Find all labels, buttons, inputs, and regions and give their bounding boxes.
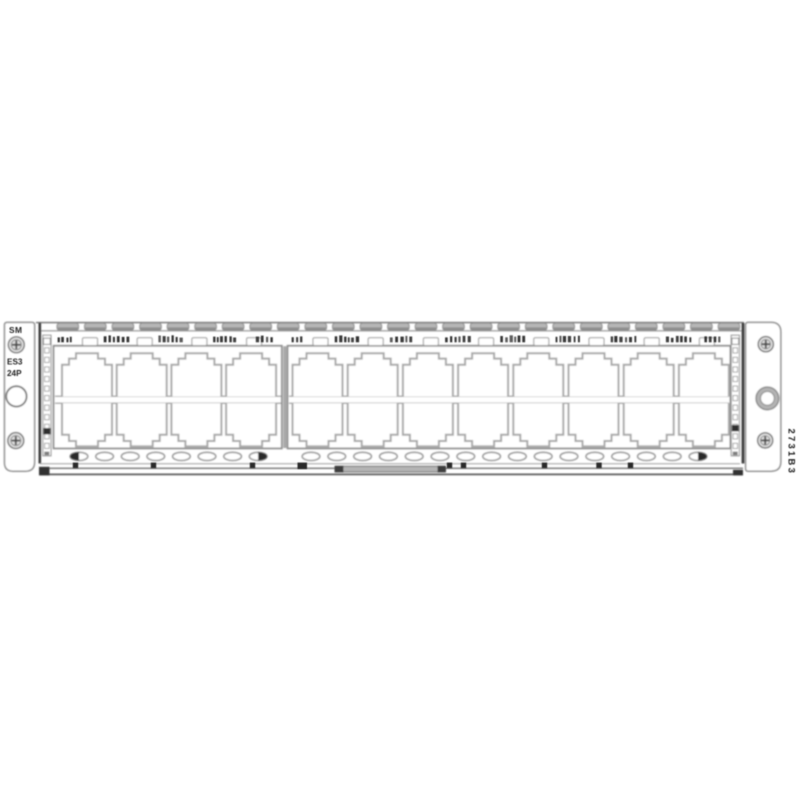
svg-text:24P: 24P [7, 369, 22, 378]
svg-text:2731B3: 2731B3 [787, 429, 798, 476]
svg-text:SM: SM [9, 325, 22, 335]
svg-text:ES3: ES3 [7, 358, 23, 367]
